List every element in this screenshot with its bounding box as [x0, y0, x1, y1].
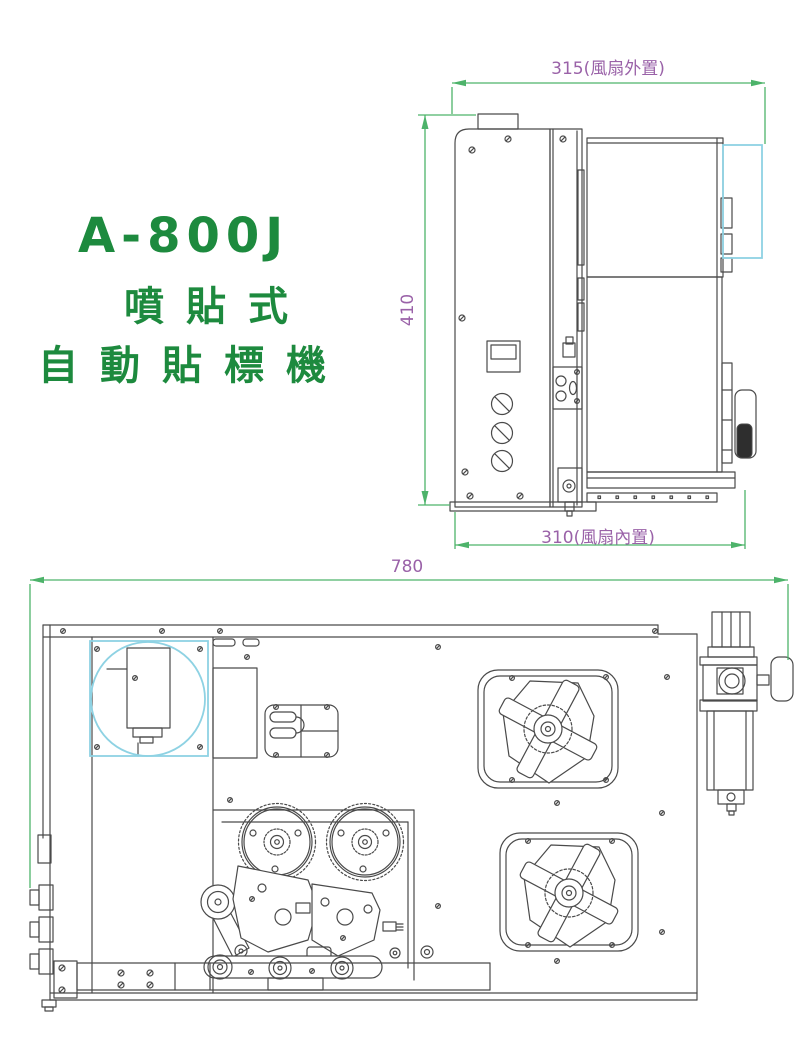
plan-view-machine — [30, 625, 697, 1011]
knob-2 — [492, 423, 513, 444]
dimension-label-side-bottom-width: 310(風扇內置) — [541, 523, 655, 548]
lower-label-spindle — [499, 823, 640, 964]
side-handle-grip — [737, 424, 752, 458]
display-window — [487, 341, 520, 372]
ribbon-disc-right — [327, 804, 404, 881]
electronics-box — [213, 668, 257, 758]
fan-motor — [127, 648, 170, 728]
handle-plate — [265, 705, 338, 758]
side-view-machine — [450, 114, 756, 516]
dimension-label-side-top-width: 315(風扇外置) — [551, 54, 665, 79]
knob-1 — [492, 394, 513, 415]
fan-external-highlight — [723, 145, 762, 258]
technical-drawing-canvas — [0, 0, 800, 1051]
dimension-label-side-height: 410 — [398, 294, 418, 326]
dimension-side-height — [418, 115, 476, 505]
dimension-label-plan-width: 780 — [391, 557, 423, 577]
upper-label-spindle — [478, 659, 619, 800]
page: { "title": { "model": "A-800J", "subtitl… — [0, 0, 800, 1051]
dimension-plan-width — [30, 577, 788, 888]
air-regulator-unit — [700, 612, 793, 815]
knob-3 — [492, 451, 513, 472]
print-mechanism — [201, 804, 433, 991]
regulator-side-dial — [771, 657, 793, 701]
fan-internal-highlight — [90, 641, 208, 756]
dimension-side-top-width — [452, 80, 765, 144]
